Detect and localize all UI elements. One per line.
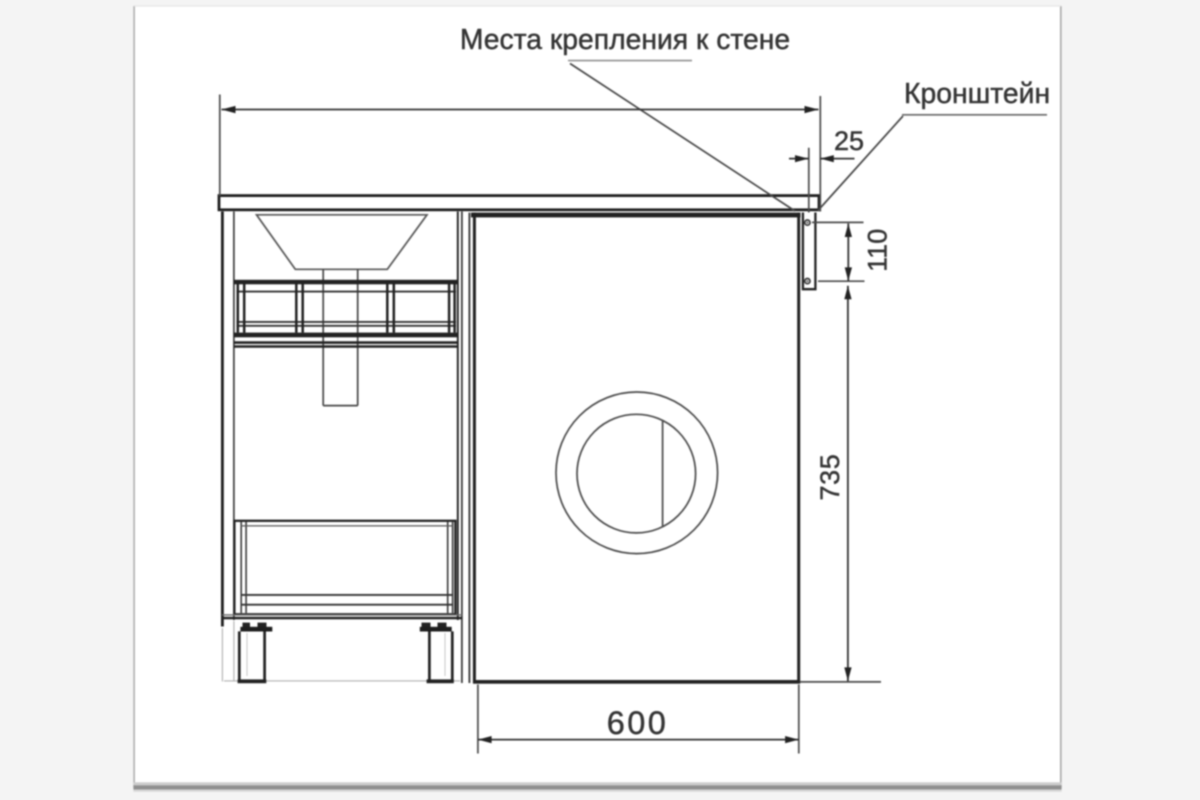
svg-text:600: 600 [607, 705, 668, 741]
svg-text:110: 110 [863, 229, 893, 272]
svg-text:25: 25 [834, 126, 864, 156]
svg-text:Кронштейн: Кронштейн [904, 77, 1050, 109]
svg-text:735: 735 [815, 454, 845, 501]
svg-text:Места крепления к стене: Места крепления к стене [460, 23, 790, 55]
